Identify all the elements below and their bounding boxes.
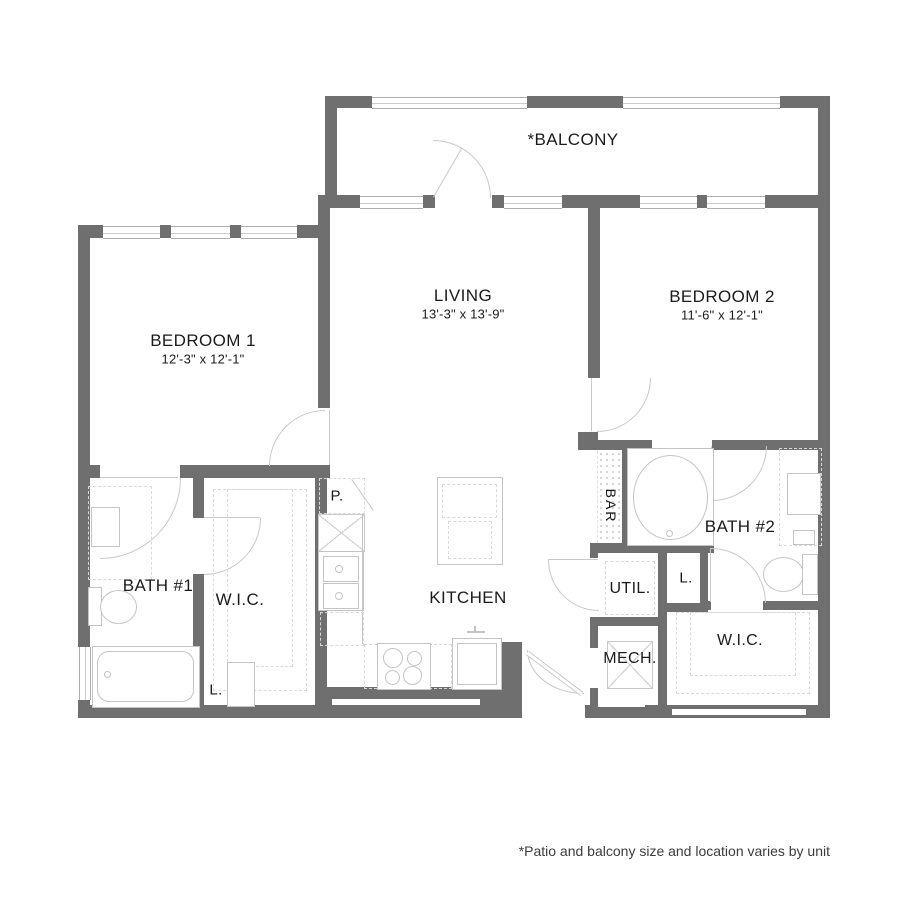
bath2-label: BATH #2 xyxy=(705,517,776,537)
linen1-label: L. xyxy=(209,682,222,699)
bath2-counter-item xyxy=(793,530,815,545)
refrigerator-icon xyxy=(318,514,365,552)
window xyxy=(171,226,230,239)
burner xyxy=(403,666,422,685)
island-overhang xyxy=(442,484,497,518)
wall xyxy=(160,225,171,238)
bath2-door-swing-arc xyxy=(712,446,767,501)
faucet xyxy=(474,626,476,631)
wall xyxy=(297,225,330,238)
window xyxy=(103,226,160,239)
linen2-label: L. xyxy=(679,570,692,587)
burner xyxy=(407,651,422,666)
wall xyxy=(763,601,820,610)
counter-dashed xyxy=(320,612,364,646)
sink-drain-2 xyxy=(335,592,343,600)
bath2-toilet-tank xyxy=(802,554,818,595)
wic2-door-leaf xyxy=(710,548,711,602)
window xyxy=(360,196,423,209)
wall xyxy=(78,465,100,478)
wall xyxy=(658,603,708,612)
bath2-toilet-bowl xyxy=(763,557,804,592)
bar-label: BAR xyxy=(603,489,619,524)
window xyxy=(241,226,297,239)
floor-plan-canvas: *BALCONY LIVING 13'-3" x 13'-9" BEDROOM … xyxy=(0,0,900,900)
bathtub-2-drain xyxy=(666,530,673,537)
living-label: LIVING xyxy=(434,286,492,306)
wic1-linen-closet xyxy=(227,662,255,707)
wall xyxy=(318,238,330,408)
wall xyxy=(562,195,640,208)
wall xyxy=(180,465,330,478)
wic2-label: W.I.C. xyxy=(717,632,763,650)
wall-inset xyxy=(595,699,645,707)
wall xyxy=(230,225,241,238)
bedroom2-label: BEDROOM 2 xyxy=(669,287,775,307)
wic1-label: W.I.C. xyxy=(216,590,265,610)
bath1-label: BATH #1 xyxy=(123,576,194,596)
prep-sink-basin xyxy=(457,643,497,685)
bedroom2-door-leaf xyxy=(591,378,592,431)
bath2-sink xyxy=(787,473,821,515)
window xyxy=(504,196,562,209)
bedroom1-door-leaf xyxy=(329,410,330,465)
window xyxy=(707,196,765,209)
util-door-leaf xyxy=(548,559,598,560)
util-door-swing-arc xyxy=(548,560,599,611)
kitchen-label: KITCHEN xyxy=(429,588,506,608)
wic2-door-swing-arc xyxy=(711,548,766,603)
pantry-label: P. xyxy=(330,488,343,505)
wall xyxy=(590,617,667,626)
wall xyxy=(325,195,360,208)
wall xyxy=(697,195,707,208)
window xyxy=(640,196,697,209)
window xyxy=(372,97,527,109)
bath1-door-leaf xyxy=(100,477,178,478)
wall xyxy=(193,478,204,518)
sink-drain-1 xyxy=(335,565,343,573)
bathtub-2-oval xyxy=(633,455,708,540)
bathtub-1-drain xyxy=(104,671,111,678)
wall xyxy=(818,96,830,196)
bedroom1-door-swing-arc xyxy=(269,410,325,466)
footnote: *Patio and balcony size and location var… xyxy=(519,843,830,859)
mech-label: MECH. xyxy=(603,650,657,668)
wall xyxy=(590,543,598,558)
bath1-sink xyxy=(91,507,120,547)
wic1-shelf-inner xyxy=(227,489,293,667)
wall xyxy=(325,96,337,196)
window xyxy=(79,647,91,700)
burner xyxy=(385,670,400,685)
wall xyxy=(78,225,90,647)
wall xyxy=(658,543,667,708)
bedroom1-dims: 12'-3" x 12'-1" xyxy=(162,352,245,367)
wall xyxy=(588,208,600,378)
bedroom2-door-swing-arc xyxy=(597,378,651,432)
faucet xyxy=(467,631,485,633)
bedroom1-label: BEDROOM 1 xyxy=(150,331,256,351)
wall xyxy=(700,548,708,606)
util-label: UTIL. xyxy=(609,580,650,598)
burner xyxy=(383,648,403,668)
wall xyxy=(492,195,504,208)
wall xyxy=(703,601,711,610)
floor-plan: *BALCONY LIVING 13'-3" x 13'-9" BEDROOM … xyxy=(0,0,900,900)
wall-inset xyxy=(672,709,806,715)
bedroom2-dims: 11'-6" x 12'-1" xyxy=(681,308,763,323)
living-dims: 13'-3" x 13'-9" xyxy=(422,307,505,322)
island-overhang xyxy=(448,521,492,559)
balcony-label: *BALCONY xyxy=(527,130,618,150)
window xyxy=(623,97,780,109)
wall xyxy=(590,688,598,718)
bathtub-1-basin xyxy=(97,651,194,702)
wall xyxy=(527,96,623,108)
